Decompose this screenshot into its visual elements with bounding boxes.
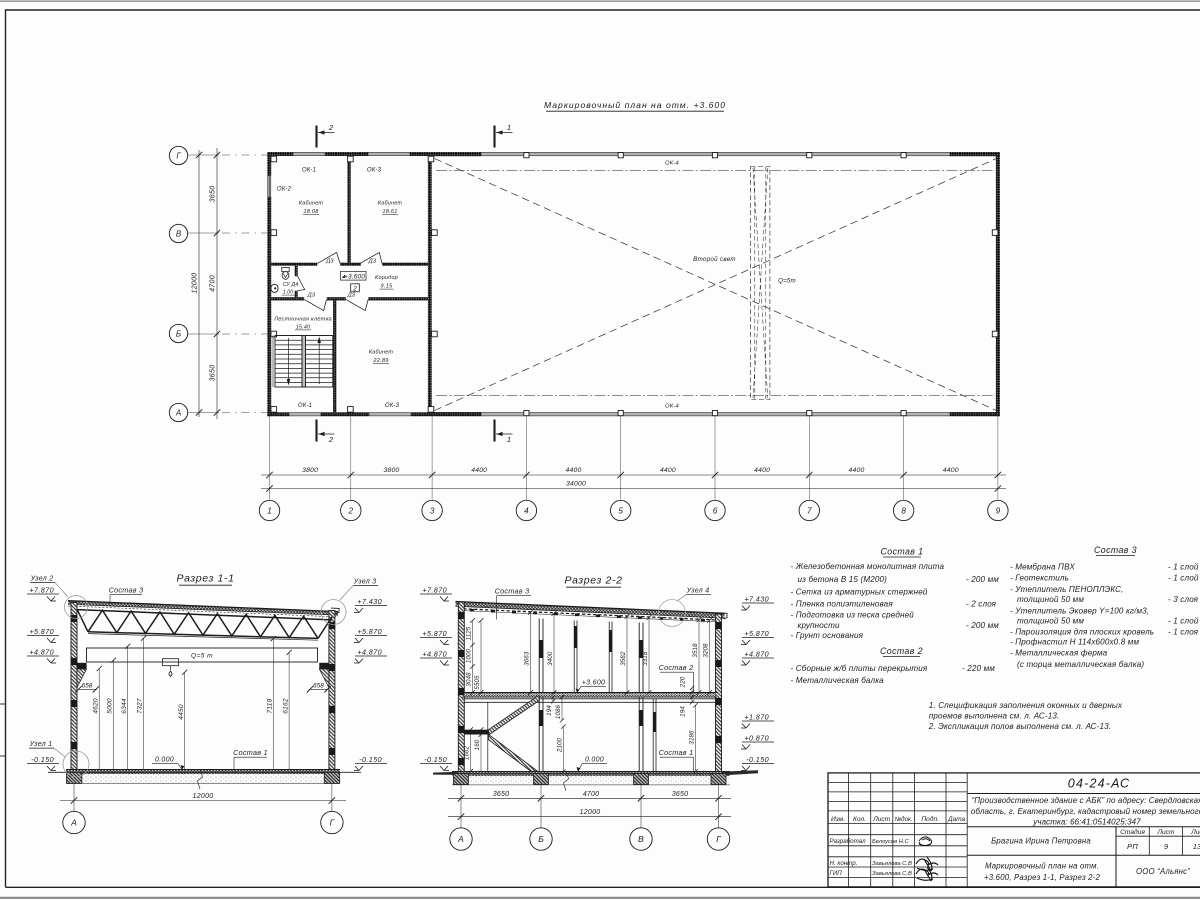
svg-text:1.00: 1.00 xyxy=(283,290,294,296)
svg-text:Состав 1: Состав 1 xyxy=(659,748,694,757)
svg-text:12000: 12000 xyxy=(580,809,601,816)
svg-text:1086: 1086 xyxy=(555,704,562,719)
svg-text:220: 220 xyxy=(680,676,687,688)
svg-text:ОК-4: ОК-4 xyxy=(665,161,679,167)
svg-text:658: 658 xyxy=(313,683,324,690)
svg-text:РП: РП xyxy=(1127,842,1138,851)
svg-text:Состав 2: Состав 2 xyxy=(880,646,923,656)
svg-text:СУ Д4: СУ Д4 xyxy=(283,282,299,288)
svg-text:0.000: 0.000 xyxy=(585,757,604,764)
svg-text:2: 2 xyxy=(348,506,354,515)
svg-text:участка: 66:41:0514025:347: участка: 66:41:0514025:347 xyxy=(1032,818,1141,827)
svg-text:+4.870: +4.870 xyxy=(422,650,447,659)
svg-text:-0.150: -0.150 xyxy=(746,755,769,764)
svg-text:Состав 1: Состав 1 xyxy=(233,748,268,757)
svg-text:-0.150: -0.150 xyxy=(359,755,382,764)
svg-text:4400: 4400 xyxy=(471,467,487,474)
svg-text:- 3 слоя: - 3 слоя xyxy=(1168,595,1199,604)
svg-text:+7.870: +7.870 xyxy=(422,586,447,595)
svg-text:1. Спецификация заполнения око: 1. Спецификация заполнения оконных и две… xyxy=(929,701,1123,710)
svg-text:ОК-1: ОК-1 xyxy=(298,403,312,409)
svg-text:2. Экспликация полов выполнена: 2. Экспликация полов выполнена см. л. АС… xyxy=(928,722,1111,731)
svg-text:- Сборные ж/б плиты перекрытия: - Сборные ж/б плиты перекрытия xyxy=(791,664,928,673)
svg-text:- Металлическая ферма: - Металлическая ферма xyxy=(1010,649,1108,658)
svg-text:1: 1 xyxy=(507,123,511,132)
svg-text:+4.870: +4.870 xyxy=(744,650,769,659)
svg-text:+4.870: +4.870 xyxy=(357,648,382,657)
svg-text:5000: 5000 xyxy=(107,698,114,714)
svg-text:3582: 3582 xyxy=(620,651,627,666)
svg-text:9: 9 xyxy=(996,506,1001,515)
svg-text:Q=5 т: Q=5 т xyxy=(191,653,213,660)
svg-text:7: 7 xyxy=(807,506,812,515)
svg-text:крупности: крупности xyxy=(798,621,840,630)
svg-text:- Профнастил Н 114х600х0.8 мм: - Профнастил Н 114х600х0.8 мм xyxy=(1010,638,1139,647)
svg-text:- 1 слой: - 1 слой xyxy=(1168,574,1199,583)
svg-text:2: 2 xyxy=(328,435,334,444)
svg-text:В: В xyxy=(176,229,182,238)
svg-text:4: 4 xyxy=(524,506,529,515)
svg-text:- 1 слоя: - 1 слоя xyxy=(1168,628,1199,637)
svg-text:4400: 4400 xyxy=(566,467,582,474)
svg-text:3048: 3048 xyxy=(465,672,472,687)
svg-text:3650: 3650 xyxy=(210,365,217,382)
svg-text:Состав 1: Состав 1 xyxy=(881,547,924,557)
svg-text:Д3: Д3 xyxy=(347,292,356,298)
svg-text:+1.870: +1.870 xyxy=(744,713,769,722)
svg-text:Кол.: Кол. xyxy=(853,816,866,823)
svg-text:194: 194 xyxy=(546,705,553,716)
svg-text:1: 1 xyxy=(507,435,511,444)
svg-text:Состав 3: Состав 3 xyxy=(109,586,144,595)
svg-text:ООО “Альянс”: ООО “Альянс” xyxy=(1136,867,1190,876)
svg-text:6: 6 xyxy=(713,506,718,515)
svg-text:В: В xyxy=(638,834,644,844)
svg-text:3650: 3650 xyxy=(493,791,509,798)
svg-text:1662: 1662 xyxy=(463,745,470,760)
svg-text:3208: 3208 xyxy=(703,643,710,658)
svg-text:“Производственное здание с АБК: “Производственное здание с АБК” по адрес… xyxy=(972,796,1200,805)
svg-text:Разрез 1-1: Разрез 1-1 xyxy=(176,573,234,585)
svg-text:6162: 6162 xyxy=(282,698,289,714)
svg-text:2: 2 xyxy=(352,285,357,292)
svg-text:3: 3 xyxy=(430,506,435,515)
svg-text:9.15: 9.15 xyxy=(381,284,394,290)
svg-text:+5.870: +5.870 xyxy=(29,627,54,636)
svg-text:- 200 мм: - 200 мм xyxy=(966,575,999,584)
svg-text:Лестничная клетка: Лестничная клетка xyxy=(273,316,332,322)
svg-text:толщиной 50 мм: толщиной 50 мм xyxy=(1017,595,1084,604)
svg-text:4400: 4400 xyxy=(660,467,676,474)
svg-text:3400: 3400 xyxy=(547,651,554,666)
svg-text:5505: 5505 xyxy=(474,675,481,690)
svg-text:3800: 3800 xyxy=(384,467,400,474)
svg-text:ОК-3: ОК-3 xyxy=(385,403,400,409)
svg-text:Б: Б xyxy=(538,834,544,844)
svg-text:4700: 4700 xyxy=(583,791,599,798)
svg-text:ОК-4: ОК-4 xyxy=(665,404,679,410)
svg-text:Лис: Лис xyxy=(1190,829,1200,836)
svg-text:3800: 3800 xyxy=(302,467,318,474)
svg-text:- Подготовка из песка средней: - Подготовка из песка средней xyxy=(791,611,915,620)
svg-text:Д3: Д3 xyxy=(307,292,316,298)
svg-text:658: 658 xyxy=(82,683,93,690)
svg-text:область, г. Екатеринбург, када: область, г. Екатеринбург, кадастровый но… xyxy=(971,807,1200,816)
svg-text:Кабинет: Кабинет xyxy=(378,201,403,207)
svg-text:Узел 3: Узел 3 xyxy=(353,579,377,586)
svg-text:Брагина Ирина Петровна: Брагина Ирина Петровна xyxy=(991,837,1091,846)
svg-text:Лист: Лист xyxy=(872,816,890,823)
svg-text:Завьялова С.В: Завьялова С.В xyxy=(872,861,912,867)
svg-text:Белоусов Н.С: Белоусов Н.С xyxy=(872,839,910,845)
svg-text:ОК-1: ОК-1 xyxy=(302,168,316,174)
svg-text:+7.430: +7.430 xyxy=(357,597,382,606)
svg-text:№док.: №док. xyxy=(894,816,912,823)
svg-text:+5.870: +5.870 xyxy=(422,629,447,638)
svg-text:+7.430: +7.430 xyxy=(744,595,769,604)
svg-text:Состав 3: Состав 3 xyxy=(1094,545,1137,555)
svg-text:- Металлическая балка: - Металлическая балка xyxy=(791,676,885,685)
svg-text:3650: 3650 xyxy=(672,791,688,798)
svg-text:Изм.: Изм. xyxy=(831,816,845,823)
svg-text:4400: 4400 xyxy=(943,467,959,474)
svg-text:18.08: 18.08 xyxy=(303,209,319,215)
svg-text:+5.870: +5.870 xyxy=(744,629,769,638)
svg-text:8: 8 xyxy=(901,506,906,515)
svg-text:3318: 3318 xyxy=(642,651,649,666)
svg-text:А: А xyxy=(175,408,181,417)
svg-text:- 2 слоя: - 2 слоя xyxy=(966,600,997,609)
svg-text:Лист: Лист xyxy=(1157,829,1175,836)
svg-text:Завьялова С.В: Завьялова С.В xyxy=(872,871,912,877)
svg-text:Разрез 2-2: Разрез 2-2 xyxy=(564,575,622,587)
svg-text:- Пленка полиэтиленовая: - Пленка полиэтиленовая xyxy=(791,600,894,609)
svg-text:Q=5т: Q=5т xyxy=(778,278,796,285)
svg-text:- 220 мм: - 220 мм xyxy=(962,664,995,673)
svg-text:3186: 3186 xyxy=(688,730,695,745)
svg-text:Разработал: Разработал xyxy=(830,838,867,845)
svg-text:2: 2 xyxy=(328,123,334,132)
svg-text:22.89: 22.89 xyxy=(372,358,388,364)
svg-text:Дата: Дата xyxy=(947,816,965,823)
svg-text:3518: 3518 xyxy=(692,643,699,658)
svg-text:- Железобетонная монолитная п: - Железобетонная монолитная плита xyxy=(791,562,945,571)
svg-text:2100: 2100 xyxy=(556,737,563,753)
svg-text:- Утеплитель ПЕНОПЛЭКС,: - Утеплитель ПЕНОПЛЭКС, xyxy=(1010,585,1124,594)
svg-text:Д3: Д3 xyxy=(325,258,334,264)
svg-text:(с торца металлическая балка): (с торца металлическая балка) xyxy=(1017,660,1144,669)
svg-text:1125: 1125 xyxy=(465,626,472,640)
svg-text:Кабинет: Кабинет xyxy=(369,350,394,356)
svg-text:Узел 1: Узел 1 xyxy=(29,741,53,748)
svg-text:+5.870: +5.870 xyxy=(357,627,382,636)
svg-text:3650: 3650 xyxy=(210,186,217,203)
svg-text:0.000: 0.000 xyxy=(155,757,174,764)
svg-text:Г: Г xyxy=(176,151,181,160)
svg-text:4400: 4400 xyxy=(849,467,865,474)
svg-text:7327: 7327 xyxy=(137,698,144,714)
svg-text:13: 13 xyxy=(1193,842,1200,851)
svg-text:- Геотекстиль: - Геотекстиль xyxy=(1010,574,1069,583)
svg-text:15.40: 15.40 xyxy=(296,324,311,330)
svg-text:- Пароизоляция для плоских кро: - Пароизоляция для плоских кровель xyxy=(1010,628,1154,637)
svg-text:6344: 6344 xyxy=(121,698,128,714)
svg-text:-0.150: -0.150 xyxy=(424,755,447,764)
svg-text:5: 5 xyxy=(618,506,623,515)
svg-text:Состав 2: Состав 2 xyxy=(659,663,694,672)
svg-text:- 1 слой: - 1 слой xyxy=(1168,563,1199,572)
svg-text:-0.150: -0.150 xyxy=(31,755,54,764)
svg-text:Д3: Д3 xyxy=(368,258,377,264)
svg-text:ГИП: ГИП xyxy=(830,870,843,877)
svg-text:1: 1 xyxy=(267,506,272,515)
svg-text:12000: 12000 xyxy=(193,793,214,800)
svg-text:А: А xyxy=(457,834,464,844)
svg-text:Кабинет: Кабинет xyxy=(299,201,324,207)
svg-text:04-24-АС: 04-24-АС xyxy=(1068,777,1130,791)
svg-text:Коридор: Коридор xyxy=(375,275,398,281)
svg-text:Узел 4: Узел 4 xyxy=(686,588,710,595)
svg-text:Узел 2: Узел 2 xyxy=(30,576,54,583)
svg-text:Состав 3: Состав 3 xyxy=(495,587,530,596)
svg-text:- Сетка из арматурных стержней: - Сетка из арматурных стержней xyxy=(791,588,928,597)
svg-text:3663: 3663 xyxy=(524,651,531,666)
svg-text:12000: 12000 xyxy=(192,273,199,294)
svg-text:18.61: 18.61 xyxy=(382,209,397,215)
svg-text:- 1 слой: - 1 слой xyxy=(1168,616,1199,625)
svg-text:194: 194 xyxy=(680,706,687,717)
svg-text:34000: 34000 xyxy=(566,481,586,488)
svg-text:- Утеплитель Эковер Y=100 кг/м: - Утеплитель Эковер Y=100 кг/м3, xyxy=(1010,606,1149,615)
svg-text:Б: Б xyxy=(176,329,181,338)
svg-text:7118: 7118 xyxy=(267,698,274,713)
svg-text:Второй свет: Второй свет xyxy=(693,256,736,263)
svg-text:- Грунт основания: - Грунт основания xyxy=(791,631,864,640)
svg-text:Маркировочный план на отм.: Маркировочный план на отм. xyxy=(985,862,1099,871)
svg-text:толщиной 50 мм: толщиной 50 мм xyxy=(1017,616,1084,625)
svg-text:+4.870: +4.870 xyxy=(29,648,54,657)
svg-text:Подп.: Подп. xyxy=(921,815,939,823)
svg-text:4400: 4400 xyxy=(754,467,770,474)
svg-text:+3.600, Разрез 1-1, Разрез 2-2: +3.600, Разрез 1-1, Разрез 2-2 xyxy=(984,873,1100,882)
svg-text:- Мембрана ПВХ: - Мембрана ПВХ xyxy=(1010,563,1075,572)
svg-text:ОК-2: ОК-2 xyxy=(277,187,292,193)
svg-text:А: А xyxy=(70,818,77,828)
svg-text:1000: 1000 xyxy=(465,648,472,663)
svg-text:+3.600: +3.600 xyxy=(582,680,605,687)
svg-text:4620: 4620 xyxy=(92,698,99,714)
svg-text:160: 160 xyxy=(474,739,481,750)
svg-text:4450: 4450 xyxy=(178,704,185,720)
svg-text:ОК-3: ОК-3 xyxy=(367,168,382,174)
svg-text:4700: 4700 xyxy=(210,275,217,292)
svg-text:+0.870: +0.870 xyxy=(744,734,769,743)
svg-text:из бетона В 15 (М200): из бетона В 15 (М200) xyxy=(798,575,888,584)
svg-text:- 200 мм: - 200 мм xyxy=(966,621,999,630)
svg-text:Н. контр.: Н. контр. xyxy=(830,860,858,867)
svg-text:+3.600: +3.600 xyxy=(344,273,365,280)
svg-text:+7.870: +7.870 xyxy=(29,586,54,595)
svg-text:проемов выполнена см. л. АС-13: проемов выполнена см. л. АС-13. xyxy=(929,712,1060,721)
svg-text:Маркировочный план на отм. +3.: Маркировочный план на отм. +3.600 xyxy=(544,100,726,110)
svg-text:Стадия: Стадия xyxy=(1120,828,1145,836)
